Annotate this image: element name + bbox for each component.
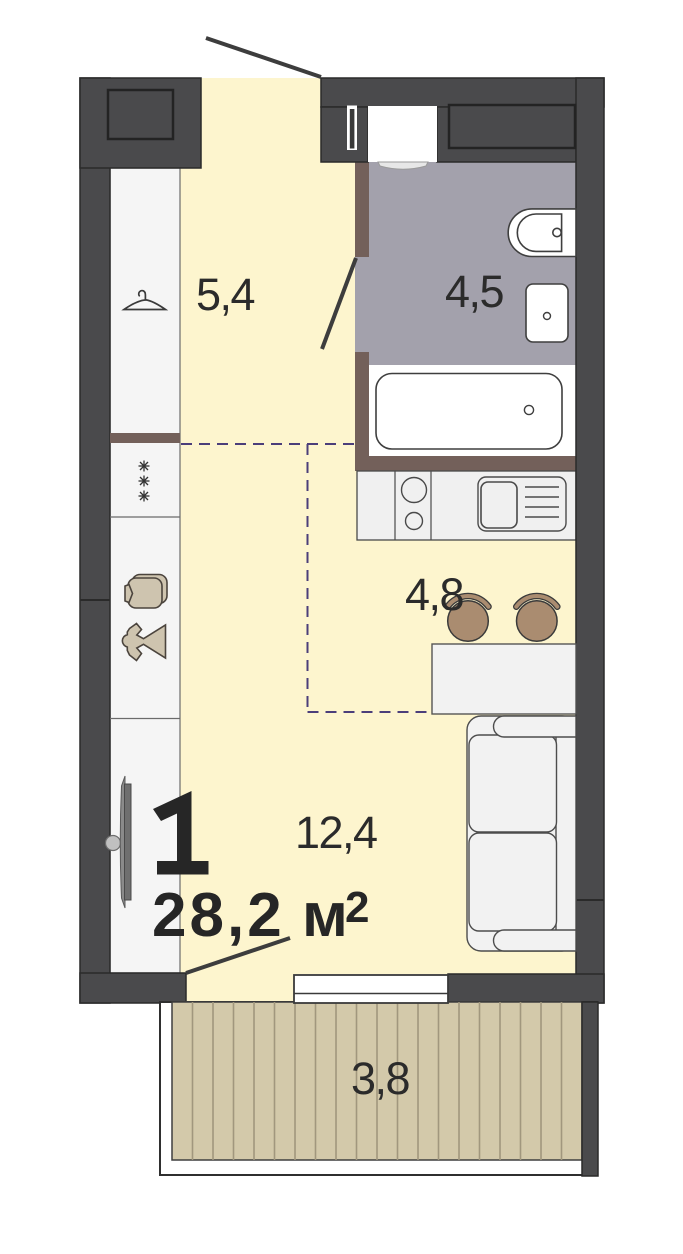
svg-text:2: 2	[345, 883, 369, 932]
svg-text:4,8: 4,8	[405, 569, 464, 620]
svg-text:4,5: 4,5	[445, 266, 504, 317]
svg-text:5,4: 5,4	[196, 269, 255, 320]
svg-text:12,4: 12,4	[295, 807, 377, 858]
svg-text:3,8: 3,8	[351, 1053, 410, 1104]
svg-text:м: м	[302, 881, 348, 950]
svg-text:28,2: 28,2	[152, 881, 285, 950]
